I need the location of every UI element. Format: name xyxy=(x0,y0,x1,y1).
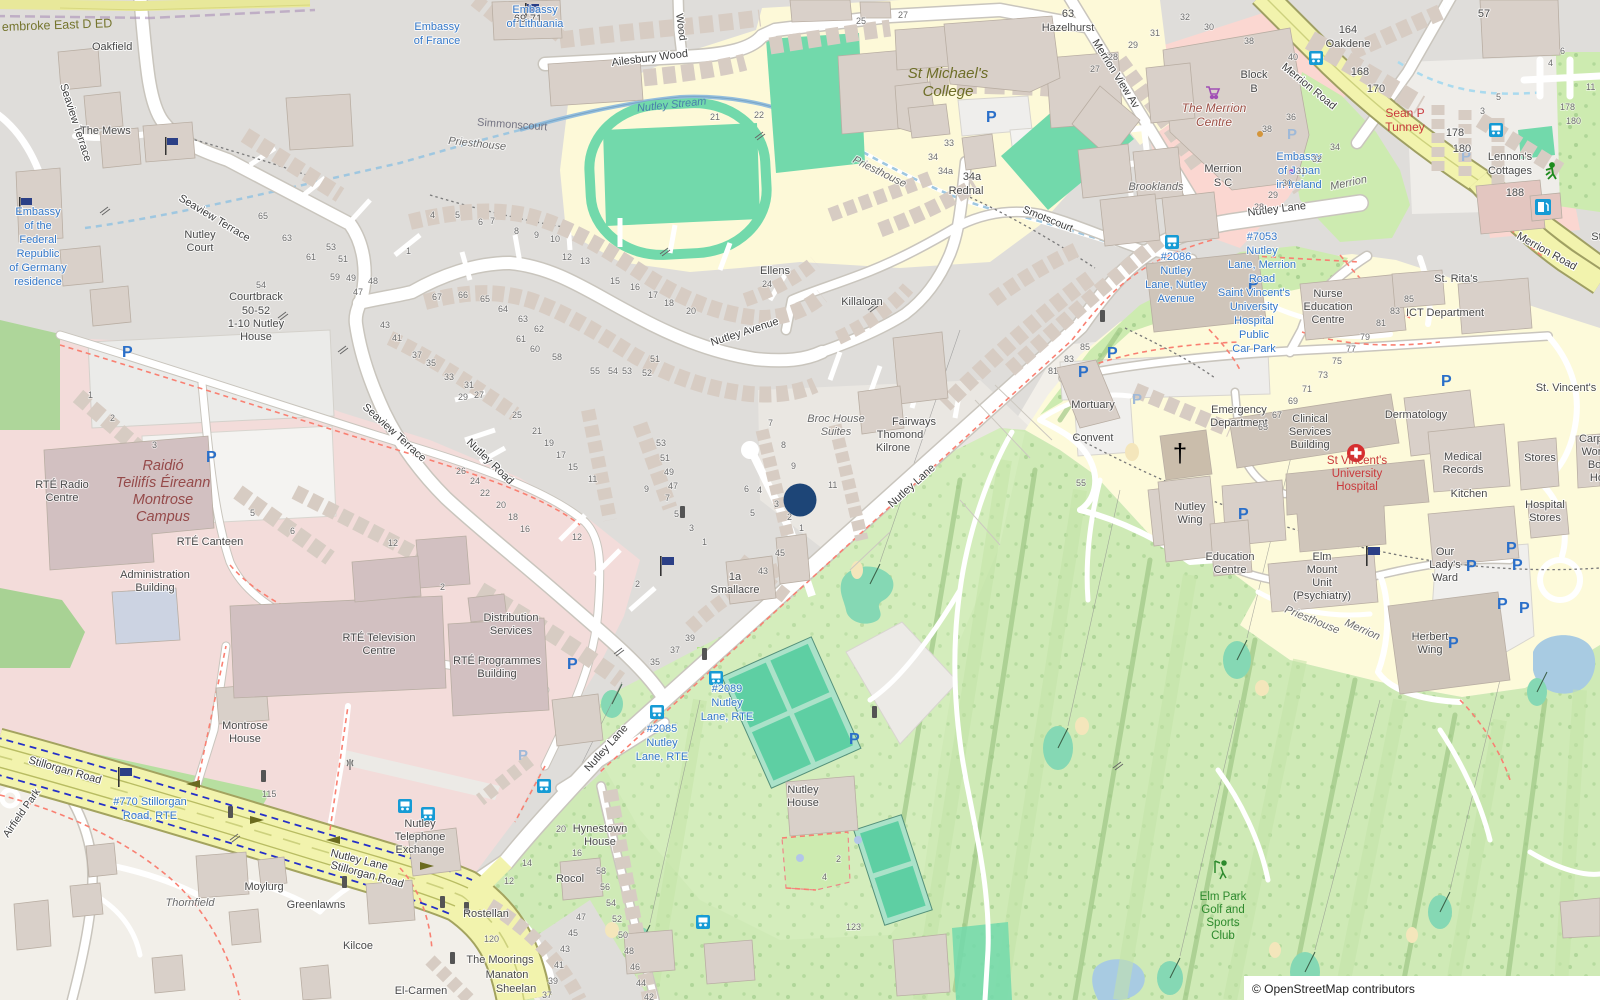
svg-text:28: 28 xyxy=(1254,202,1264,212)
svg-text:Manaton: Manaton xyxy=(486,969,529,981)
svg-text:RTÉ Programmes: RTÉ Programmes xyxy=(453,654,541,667)
svg-text:65: 65 xyxy=(480,294,490,304)
svg-text:15: 15 xyxy=(610,276,620,286)
svg-text:29: 29 xyxy=(1268,190,1278,200)
svg-text:33: 33 xyxy=(944,138,954,148)
svg-text:House: House xyxy=(787,797,819,809)
svg-text:Sean P: Sean P xyxy=(1385,106,1424,120)
svg-text:Sports: Sports xyxy=(1206,917,1239,929)
svg-text:Distribution: Distribution xyxy=(483,612,538,624)
svg-text:30: 30 xyxy=(1204,22,1214,32)
svg-text:53: 53 xyxy=(622,366,632,376)
svg-text:Centre: Centre xyxy=(362,645,395,657)
svg-text:Embassy: Embassy xyxy=(15,206,61,218)
svg-text:3: 3 xyxy=(689,523,694,533)
svg-text:43: 43 xyxy=(560,944,570,954)
svg-text:Suites: Suites xyxy=(821,426,852,438)
svg-text:40: 40 xyxy=(1288,52,1298,62)
svg-text:9: 9 xyxy=(534,230,539,240)
svg-text:Tunney: Tunney xyxy=(1385,120,1425,134)
svg-text:Hospital: Hospital xyxy=(1525,499,1565,511)
svg-text:Hazelhurst: Hazelhurst xyxy=(1042,22,1095,34)
svg-text:120: 120 xyxy=(484,934,499,944)
svg-text:Greenlawns: Greenlawns xyxy=(287,899,346,911)
svg-text:5: 5 xyxy=(750,508,755,518)
svg-text:P: P xyxy=(986,109,997,126)
svg-text:Nutley: Nutley xyxy=(646,737,678,749)
svg-text:69: 69 xyxy=(1288,396,1298,406)
svg-text:Rostellan: Rostellan xyxy=(463,908,509,920)
svg-text:Nutley: Nutley xyxy=(787,784,819,796)
svg-text:6: 6 xyxy=(478,217,483,227)
svg-text:83: 83 xyxy=(1390,306,1400,316)
svg-text:41: 41 xyxy=(554,960,564,970)
svg-text:Emergency: Emergency xyxy=(1211,404,1267,416)
svg-text:The Mews: The Mews xyxy=(80,125,131,137)
svg-text:Nutley: Nutley xyxy=(1246,245,1278,257)
svg-text:Herbert: Herbert xyxy=(1412,631,1449,643)
svg-text:67: 67 xyxy=(1272,410,1282,420)
svg-text:St. Vincent's: St. Vincent's xyxy=(1536,382,1597,394)
svg-text:The Moorings: The Moorings xyxy=(466,954,534,966)
svg-text:Boil: Boil xyxy=(1588,459,1600,471)
svg-text:7: 7 xyxy=(665,493,670,503)
svg-text:85: 85 xyxy=(1080,342,1090,352)
svg-text:5: 5 xyxy=(674,509,679,519)
svg-text:of France: of France xyxy=(414,35,460,47)
svg-text:3: 3 xyxy=(152,440,157,450)
svg-text:50-52: 50-52 xyxy=(242,305,270,317)
svg-text:Clinical: Clinical xyxy=(1292,413,1327,425)
svg-text:5: 5 xyxy=(455,210,460,220)
svg-text:Centre: Centre xyxy=(45,492,78,504)
svg-text:58: 58 xyxy=(596,866,606,876)
svg-text:Federal: Federal xyxy=(19,234,56,246)
svg-text:RTÉ Television: RTÉ Television xyxy=(343,631,416,644)
svg-text:1: 1 xyxy=(406,246,411,256)
svg-text:25: 25 xyxy=(512,410,522,420)
svg-text:P: P xyxy=(1506,540,1517,557)
svg-text:34a: 34a xyxy=(938,166,953,176)
svg-text:30: 30 xyxy=(1282,178,1292,188)
svg-text:75: 75 xyxy=(1332,356,1342,366)
svg-text:62: 62 xyxy=(534,324,544,334)
svg-text:Kilrone: Kilrone xyxy=(876,442,910,454)
svg-text:38: 38 xyxy=(1262,124,1272,134)
svg-text:Worksh: Worksh xyxy=(1581,446,1600,458)
svg-text:Courtbrack: Courtbrack xyxy=(229,291,283,303)
svg-text:2: 2 xyxy=(635,579,640,589)
svg-text:55: 55 xyxy=(1076,478,1086,488)
svg-text:45: 45 xyxy=(568,928,578,938)
svg-text:P: P xyxy=(1132,391,1142,408)
svg-text:168: 168 xyxy=(1351,66,1369,78)
svg-text:P: P xyxy=(518,747,528,764)
svg-text:St Michael's: St Michael's xyxy=(908,65,989,82)
svg-text:Road, RTE: Road, RTE xyxy=(123,810,177,822)
svg-text:26: 26 xyxy=(456,466,466,476)
svg-text:170: 170 xyxy=(1367,83,1385,95)
svg-text:University: University xyxy=(1230,301,1279,313)
svg-text:85: 85 xyxy=(1404,294,1414,304)
svg-text:Education: Education xyxy=(1206,551,1255,563)
svg-text:Building: Building xyxy=(135,582,174,594)
svg-text:P: P xyxy=(1497,596,1508,613)
svg-text:Nutley: Nutley xyxy=(404,818,436,830)
svg-text:27: 27 xyxy=(474,390,484,400)
svg-text:P: P xyxy=(1287,126,1297,143)
svg-text:7: 7 xyxy=(490,216,495,226)
svg-text:81: 81 xyxy=(1376,318,1386,328)
svg-text:Ward: Ward xyxy=(1432,572,1458,584)
svg-text:Teilifís Éireann: Teilifís Éireann xyxy=(116,474,211,491)
svg-text:65: 65 xyxy=(1258,422,1268,432)
svg-text:47: 47 xyxy=(353,287,363,297)
svg-text:Club: Club xyxy=(1211,930,1235,942)
svg-text:6: 6 xyxy=(290,526,295,536)
svg-text:178: 178 xyxy=(1560,102,1575,112)
svg-text:31: 31 xyxy=(464,380,474,390)
svg-text:Centre: Centre xyxy=(1213,564,1246,576)
svg-text:P: P xyxy=(1512,557,1523,574)
svg-text:39: 39 xyxy=(685,633,695,643)
svg-text:42: 42 xyxy=(644,992,654,1000)
svg-text:37: 37 xyxy=(542,990,552,1000)
svg-text:P: P xyxy=(1078,364,1089,381)
svg-text:Merrion: Merrion xyxy=(1204,163,1241,175)
svg-text:P: P xyxy=(1466,558,1477,575)
svg-text:Oakfield: Oakfield xyxy=(92,41,132,53)
svg-text:Centre: Centre xyxy=(1311,314,1344,326)
svg-text:© OpenStreetMap contributors: © OpenStreetMap contributors xyxy=(1252,982,1415,996)
svg-text:Dermatology: Dermatology xyxy=(1385,409,1448,421)
svg-text:54: 54 xyxy=(606,898,616,908)
svg-text:16: 16 xyxy=(630,282,640,292)
svg-text:44: 44 xyxy=(636,978,646,988)
svg-text:Wing: Wing xyxy=(1417,644,1442,656)
svg-text:49: 49 xyxy=(664,467,674,477)
svg-text:34: 34 xyxy=(1330,142,1340,152)
svg-text:St Vincent's: St Vincent's xyxy=(1327,455,1387,467)
svg-text:El-Carmen: El-Carmen xyxy=(395,985,448,997)
svg-text:Avenue: Avenue xyxy=(1157,293,1194,305)
svg-text:Unit: Unit xyxy=(1312,577,1332,589)
svg-text:4: 4 xyxy=(1548,58,1553,68)
svg-text:Nutley: Nutley xyxy=(711,697,743,709)
svg-text:Telephone: Telephone xyxy=(395,831,446,843)
svg-text:28: 28 xyxy=(1108,52,1118,62)
svg-text:51: 51 xyxy=(650,354,660,364)
svg-text:Thornfield: Thornfield xyxy=(166,897,216,909)
svg-text:Raidió: Raidió xyxy=(142,458,183,474)
svg-text:24: 24 xyxy=(762,279,772,289)
svg-text:48: 48 xyxy=(624,946,634,956)
svg-text:Lane, RTE: Lane, RTE xyxy=(636,751,688,763)
svg-text:12: 12 xyxy=(572,532,582,542)
svg-text:48: 48 xyxy=(368,276,378,286)
svg-text:21: 21 xyxy=(710,112,720,122)
svg-text:17: 17 xyxy=(556,450,566,460)
svg-text:Exchange: Exchange xyxy=(396,844,445,856)
svg-text:11: 11 xyxy=(588,474,597,484)
svg-text:Building: Building xyxy=(477,668,516,680)
svg-text:13: 13 xyxy=(580,256,590,266)
svg-text:#7053: #7053 xyxy=(1247,231,1278,243)
svg-text:2: 2 xyxy=(836,854,841,864)
svg-text:18: 18 xyxy=(664,298,674,308)
svg-text:43: 43 xyxy=(758,566,768,576)
svg-text:39: 39 xyxy=(548,976,558,986)
svg-text:32: 32 xyxy=(1312,154,1322,164)
svg-text:1: 1 xyxy=(702,537,707,547)
svg-text:#770 Stillorgan: #770 Stillorgan xyxy=(113,796,186,808)
svg-text:#2089: #2089 xyxy=(712,683,743,695)
svg-text:Embassy: Embassy xyxy=(512,4,558,16)
svg-text:15: 15 xyxy=(568,462,578,472)
svg-text:The Merrion: The Merrion xyxy=(1182,101,1247,115)
svg-text:(Psychiatry): (Psychiatry) xyxy=(1293,590,1351,602)
svg-text:Hou: Hou xyxy=(1590,472,1600,484)
svg-text:Rednal: Rednal xyxy=(949,185,984,197)
svg-text:4: 4 xyxy=(757,485,762,495)
svg-text:Elm Park: Elm Park xyxy=(1200,891,1247,903)
svg-text:32: 32 xyxy=(1180,12,1190,22)
svg-text:5: 5 xyxy=(1496,92,1501,102)
svg-text:Mortuary: Mortuary xyxy=(1071,399,1115,411)
svg-text:77: 77 xyxy=(1346,344,1356,354)
svg-text:24: 24 xyxy=(470,476,480,486)
svg-text:47: 47 xyxy=(668,481,678,491)
svg-text:46: 46 xyxy=(630,962,640,972)
svg-text:3: 3 xyxy=(774,499,779,509)
svg-text:59: 59 xyxy=(330,272,340,282)
svg-text:18: 18 xyxy=(508,512,518,522)
svg-text:12: 12 xyxy=(504,876,514,886)
svg-text:79: 79 xyxy=(1360,332,1370,342)
svg-text:P: P xyxy=(1519,600,1530,617)
svg-text:6: 6 xyxy=(744,484,749,494)
svg-text:Campus: Campus xyxy=(136,509,190,525)
svg-text:Court: Court xyxy=(187,242,214,254)
svg-text:36: 36 xyxy=(1286,112,1296,122)
svg-text:41: 41 xyxy=(392,333,402,343)
svg-text:11: 11 xyxy=(1586,82,1595,92)
svg-text:B: B xyxy=(1250,83,1257,95)
svg-text:Building: Building xyxy=(1290,439,1329,451)
svg-text:residence: residence xyxy=(14,276,62,288)
svg-text:P: P xyxy=(1441,373,1452,390)
svg-text:20: 20 xyxy=(496,500,506,510)
svg-text:Golf and: Golf and xyxy=(1201,904,1244,916)
svg-text:3: 3 xyxy=(1480,106,1485,116)
svg-text:Smallacre: Smallacre xyxy=(711,584,760,596)
svg-text:of the: of the xyxy=(24,220,52,232)
svg-text:25: 25 xyxy=(856,16,866,26)
svg-text:52: 52 xyxy=(642,368,652,378)
svg-text:115: 115 xyxy=(262,789,276,799)
svg-text:31: 31 xyxy=(1296,166,1306,176)
svg-text:81: 81 xyxy=(1048,366,1058,376)
svg-text:17: 17 xyxy=(648,290,658,300)
svg-text:63: 63 xyxy=(518,314,528,324)
svg-text:60: 60 xyxy=(530,344,540,354)
svg-text:188: 188 xyxy=(1506,187,1524,199)
svg-text:19: 19 xyxy=(544,438,554,448)
svg-text:Kitchen: Kitchen xyxy=(1451,488,1488,500)
svg-text:47: 47 xyxy=(576,912,586,922)
svg-text:of Germany: of Germany xyxy=(9,262,67,274)
svg-text:64: 64 xyxy=(498,304,508,314)
svg-text:Saint Vincent's: Saint Vincent's xyxy=(1218,287,1291,299)
svg-text:61: 61 xyxy=(306,252,316,262)
svg-text:53: 53 xyxy=(656,438,666,448)
svg-text:16: 16 xyxy=(572,848,582,858)
svg-text:ICT Department: ICT Department xyxy=(1406,307,1484,319)
svg-text:†: † xyxy=(1173,438,1187,468)
svg-text:58: 58 xyxy=(552,352,562,362)
svg-text:49: 49 xyxy=(346,273,356,283)
svg-text:Hospital: Hospital xyxy=(1336,481,1378,493)
svg-text:50: 50 xyxy=(618,930,628,940)
svg-text:Education: Education xyxy=(1304,301,1353,313)
svg-text:10: 10 xyxy=(550,234,560,244)
svg-text:51: 51 xyxy=(338,254,348,264)
svg-text:1: 1 xyxy=(88,390,93,400)
svg-text:Lane, Merrion: Lane, Merrion xyxy=(1228,259,1296,271)
svg-text:1a: 1a xyxy=(729,571,742,583)
svg-text:P: P xyxy=(1448,635,1459,652)
svg-text:8: 8 xyxy=(514,226,519,236)
svg-text:4: 4 xyxy=(430,210,435,220)
svg-text:Administration: Administration xyxy=(120,569,190,581)
svg-text:Nutley: Nutley xyxy=(1174,501,1206,513)
svg-text:12: 12 xyxy=(562,252,572,262)
svg-text:Nurse: Nurse xyxy=(1313,288,1342,300)
svg-text:7: 7 xyxy=(768,418,773,428)
svg-text:Lady's: Lady's xyxy=(1429,559,1461,571)
svg-text:14: 14 xyxy=(522,858,532,868)
svg-text:Public: Public xyxy=(1239,329,1269,341)
svg-text:Brooklands: Brooklands xyxy=(1128,181,1184,193)
svg-text:Rocol: Rocol xyxy=(556,873,584,885)
svg-text:Road: Road xyxy=(1249,273,1275,285)
svg-text:43: 43 xyxy=(380,320,390,330)
svg-text:34a: 34a xyxy=(963,171,982,183)
svg-text:P: P xyxy=(567,656,578,673)
svg-text:#2085: #2085 xyxy=(647,723,678,735)
svg-text:P: P xyxy=(1107,345,1118,362)
svg-text:Republic: Republic xyxy=(17,248,60,260)
svg-text:Nutley: Nutley xyxy=(184,229,216,241)
svg-text:4: 4 xyxy=(822,872,827,882)
svg-text:2: 2 xyxy=(110,413,115,423)
svg-text:63: 63 xyxy=(1062,8,1074,20)
svg-text:St.: St. xyxy=(1591,231,1600,243)
svg-text:180: 180 xyxy=(1566,116,1581,126)
svg-text:180: 180 xyxy=(1453,143,1471,155)
svg-text:House: House xyxy=(229,733,261,745)
svg-text:P: P xyxy=(1238,506,1249,523)
svg-text:University: University xyxy=(1332,468,1383,480)
svg-text:29: 29 xyxy=(458,392,468,402)
svg-text:34: 34 xyxy=(928,152,938,162)
svg-text:65: 65 xyxy=(258,211,268,221)
svg-text:P: P xyxy=(206,449,217,466)
svg-text:1: 1 xyxy=(799,523,804,533)
svg-text:Stores: Stores xyxy=(1529,512,1561,524)
svg-text:Cottages: Cottages xyxy=(1488,165,1533,177)
svg-text:61: 61 xyxy=(516,334,526,344)
svg-text:Our: Our xyxy=(1436,546,1455,558)
svg-text:P: P xyxy=(849,731,860,748)
svg-text:Hynestown: Hynestown xyxy=(573,823,627,835)
svg-text:1-10 Nutley: 1-10 Nutley xyxy=(228,318,285,330)
svg-text:P: P xyxy=(122,344,133,361)
svg-text:178: 178 xyxy=(1446,127,1464,139)
svg-text:Lennon's: Lennon's xyxy=(1488,151,1533,163)
svg-text:Car Park: Car Park xyxy=(1232,343,1276,355)
svg-text:35: 35 xyxy=(426,358,436,368)
svg-text:8: 8 xyxy=(781,440,786,450)
svg-text:Carpen: Carpen xyxy=(1579,433,1600,445)
svg-text:63: 63 xyxy=(282,233,292,243)
svg-text:RTÉ Radio: RTÉ Radio xyxy=(35,478,89,491)
svg-text:Stores: Stores xyxy=(1524,452,1556,464)
svg-text:53: 53 xyxy=(326,242,336,252)
svg-text:12: 12 xyxy=(388,538,398,548)
svg-text:37: 37 xyxy=(670,645,680,655)
svg-text:Nutley: Nutley xyxy=(1160,265,1192,277)
svg-text:Services: Services xyxy=(490,625,533,637)
svg-text:Moylurg: Moylurg xyxy=(244,881,283,893)
svg-text:Wing: Wing xyxy=(1177,514,1202,526)
svg-text:2: 2 xyxy=(440,582,445,592)
svg-text:S C: S C xyxy=(1214,177,1232,189)
svg-text:52: 52 xyxy=(612,914,622,924)
svg-text:67: 67 xyxy=(432,292,442,302)
svg-text:56: 56 xyxy=(600,882,610,892)
svg-text:45: 45 xyxy=(775,548,785,558)
svg-text:27: 27 xyxy=(1090,64,1100,74)
svg-text:66: 66 xyxy=(458,290,468,300)
svg-text:Embassy: Embassy xyxy=(414,21,460,33)
svg-text:5: 5 xyxy=(250,508,255,518)
svg-text:Kilcoe: Kilcoe xyxy=(343,940,373,952)
svg-text:Killaloan: Killaloan xyxy=(841,296,883,308)
svg-text:33: 33 xyxy=(444,372,454,382)
svg-text:Elm: Elm xyxy=(1313,551,1332,563)
svg-text:College: College xyxy=(923,83,974,100)
svg-text:Oakdene: Oakdene xyxy=(1326,38,1371,50)
svg-text:Broc House: Broc House xyxy=(807,413,864,425)
svg-text:123: 123 xyxy=(846,922,861,932)
svg-text:of Lithuania: of Lithuania xyxy=(507,18,565,30)
svg-text:Records: Records xyxy=(1443,464,1484,476)
svg-text:9: 9 xyxy=(644,484,649,494)
svg-text:6: 6 xyxy=(1560,46,1565,56)
svg-text:House: House xyxy=(240,331,272,343)
svg-text:Montrose: Montrose xyxy=(133,492,193,508)
svg-text:29: 29 xyxy=(1128,40,1138,50)
svg-text:9: 9 xyxy=(791,461,796,471)
svg-text:Convent: Convent xyxy=(1073,432,1114,444)
svg-text:Services: Services xyxy=(1289,426,1332,438)
svg-text:House: House xyxy=(584,836,616,848)
svg-text:54: 54 xyxy=(256,280,266,290)
svg-text:27: 27 xyxy=(898,10,908,20)
svg-text:55: 55 xyxy=(590,366,600,376)
svg-text:Block: Block xyxy=(1241,69,1268,81)
